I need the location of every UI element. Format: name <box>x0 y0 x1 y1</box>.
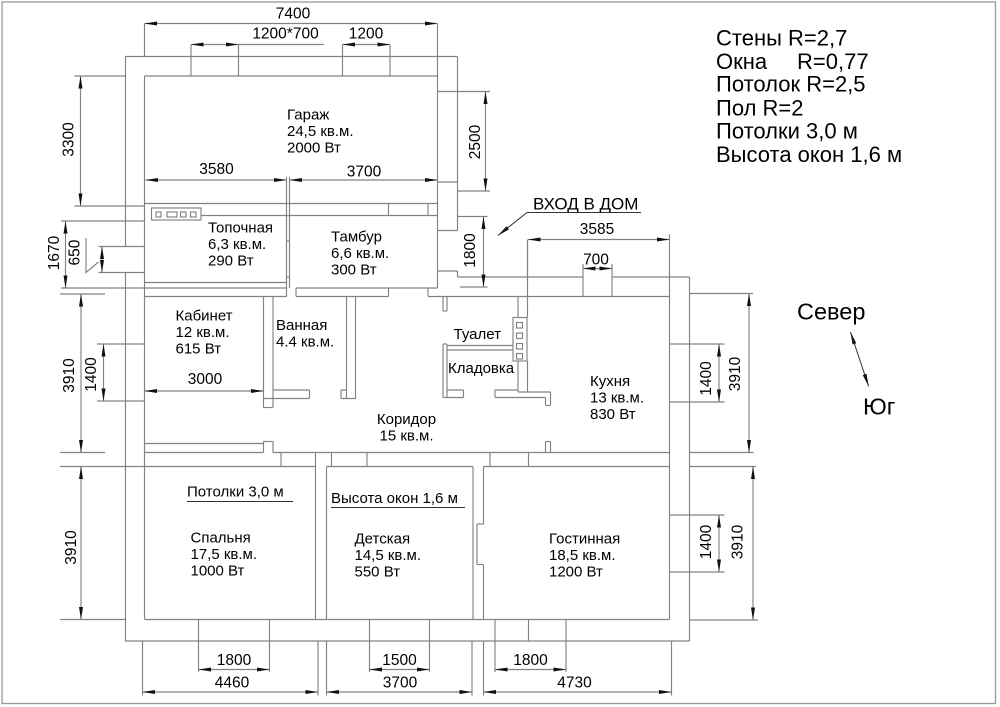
svg-text:1800: 1800 <box>513 652 548 669</box>
svg-text:3700: 3700 <box>347 164 382 181</box>
svg-text:Потолок R=2,5: Потолок R=2,5 <box>716 72 866 97</box>
svg-text:3910: 3910 <box>63 530 80 565</box>
svg-text:3000: 3000 <box>188 371 223 388</box>
svg-text:615 Вт: 615 Вт <box>176 341 222 358</box>
svg-text:700: 700 <box>583 252 609 269</box>
svg-text:650: 650 <box>67 239 84 265</box>
svg-text:Север: Север <box>797 299 865 325</box>
svg-text:1400: 1400 <box>698 361 715 396</box>
svg-text:3580: 3580 <box>199 161 234 178</box>
svg-text:Юг: Юг <box>863 394 895 420</box>
svg-text:Коридор: Коридор <box>377 411 436 428</box>
svg-text:Потолки 3,0 м: Потолки 3,0 м <box>187 484 284 501</box>
svg-text:Стены R=2,7: Стены R=2,7 <box>716 26 847 51</box>
svg-text:Окна: Окна <box>716 49 768 74</box>
svg-text:14,5 кв.м.: 14,5 кв.м. <box>355 547 422 564</box>
svg-text:Спальня: Спальня <box>191 530 251 547</box>
svg-text:3910: 3910 <box>727 356 744 391</box>
svg-text:300 Вт: 300 Вт <box>331 262 377 279</box>
svg-text:Гостинная: Гостинная <box>549 531 620 548</box>
svg-text:ВХОД В ДОМ: ВХОД В ДОМ <box>533 195 638 214</box>
svg-text:1670: 1670 <box>46 235 63 270</box>
svg-text:1200: 1200 <box>349 26 384 43</box>
svg-text:Топочная: Топочная <box>208 220 273 237</box>
svg-text:15 кв.м.: 15 кв.м. <box>379 428 433 445</box>
svg-text:6,6 кв.м.: 6,6 кв.м. <box>331 245 389 262</box>
svg-text:1400: 1400 <box>83 357 100 392</box>
svg-text:18,5 кв.м.: 18,5 кв.м. <box>549 547 616 564</box>
svg-text:830 Вт: 830 Вт <box>590 406 636 423</box>
svg-text:12 кв.м.: 12 кв.м. <box>176 324 230 341</box>
svg-text:1400: 1400 <box>698 524 715 559</box>
svg-text:1800: 1800 <box>462 233 479 268</box>
svg-text:Ванная: Ванная <box>276 317 327 334</box>
svg-text:7400: 7400 <box>276 6 311 23</box>
svg-text:1500: 1500 <box>382 652 417 669</box>
svg-text:4730: 4730 <box>557 675 592 692</box>
svg-text:2000 Вт: 2000 Вт <box>287 140 341 157</box>
svg-text:Кладовка: Кладовка <box>448 360 515 377</box>
svg-text:4.4 кв.м.: 4.4 кв.м. <box>276 334 334 351</box>
svg-text:550 Вт: 550 Вт <box>355 564 401 581</box>
svg-text:Потолки 3,0 м: Потолки 3,0 м <box>716 119 858 144</box>
svg-text:290 Вт: 290 Вт <box>208 253 254 270</box>
svg-text:3910: 3910 <box>730 524 747 559</box>
svg-text:6,3 кв.м.: 6,3 кв.м. <box>208 236 266 253</box>
svg-text:3700: 3700 <box>383 675 418 692</box>
svg-text:1000 Вт: 1000 Вт <box>191 563 245 580</box>
svg-text:3910: 3910 <box>61 358 78 393</box>
svg-text:Тамбур: Тамбур <box>331 229 382 246</box>
svg-text:1800: 1800 <box>217 652 252 669</box>
svg-text:Высота окон 1,6 м: Высота окон 1,6 м <box>331 490 458 507</box>
svg-text:4460: 4460 <box>215 675 250 692</box>
svg-text:3300: 3300 <box>61 122 78 157</box>
svg-text:Гараж: Гараж <box>287 107 329 124</box>
svg-text:Кухня: Кухня <box>590 373 630 390</box>
svg-text:Высота окон 1,6 м: Высота окон 1,6 м <box>716 142 902 167</box>
svg-text:1200 Вт: 1200 Вт <box>549 564 603 581</box>
svg-text:3585: 3585 <box>580 221 614 238</box>
svg-text:2500: 2500 <box>467 124 484 159</box>
svg-text:13 кв.м.: 13 кв.м. <box>590 390 644 407</box>
svg-text:24,5 кв.м.: 24,5 кв.м. <box>287 123 354 140</box>
svg-text:Туалет: Туалет <box>454 326 502 343</box>
svg-text:17,5 кв.м.: 17,5 кв.м. <box>191 546 258 563</box>
svg-text:Пол R=2: Пол R=2 <box>716 96 803 121</box>
svg-text:1200*700: 1200*700 <box>252 26 319 43</box>
svg-text:Детская: Детская <box>355 531 411 548</box>
svg-text:R=0,77: R=0,77 <box>797 49 869 74</box>
svg-text:Кабинет: Кабинет <box>176 308 233 325</box>
